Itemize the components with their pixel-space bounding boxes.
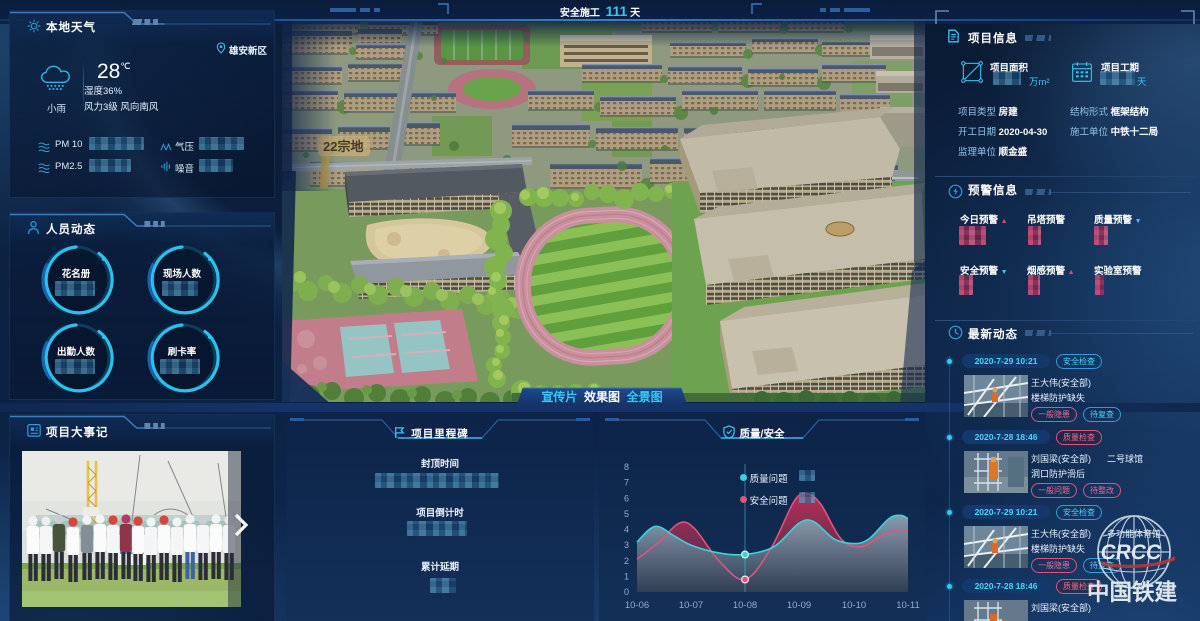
svg-text:4: 4 — [624, 525, 629, 535]
svg-text:10-09: 10-09 — [787, 600, 811, 611]
svg-text:10-07: 10-07 — [679, 600, 703, 611]
svg-text:中国铁建: 中国铁建 — [1087, 580, 1178, 605]
svg-text:1: 1 — [624, 571, 629, 581]
svg-text:10-06: 10-06 — [625, 600, 649, 611]
svg-text:10-10: 10-10 — [842, 600, 866, 611]
svg-text:10-11: 10-11 — [896, 600, 920, 611]
svg-text:2: 2 — [624, 556, 629, 566]
svg-text:CRCC: CRCC — [1099, 541, 1163, 564]
svg-text:5: 5 — [624, 509, 629, 519]
svg-text:10-08: 10-08 — [733, 600, 757, 611]
svg-text:8: 8 — [624, 462, 629, 472]
svg-text:6: 6 — [624, 493, 629, 503]
svg-text:7: 7 — [624, 478, 629, 488]
svg-text:0: 0 — [624, 587, 629, 597]
svg-text:3: 3 — [624, 540, 629, 550]
